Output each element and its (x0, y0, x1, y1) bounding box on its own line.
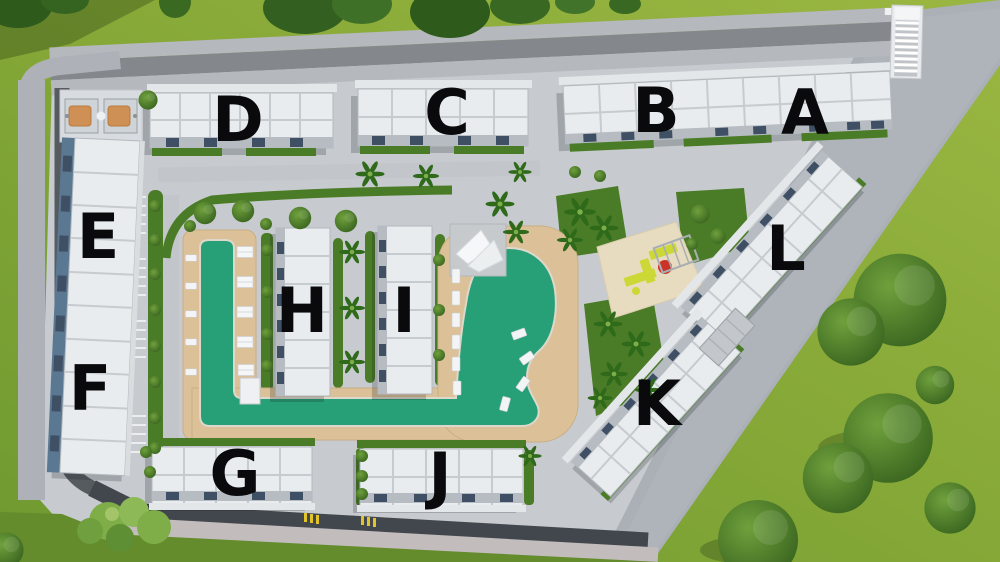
tree (924, 482, 975, 533)
bush (261, 360, 273, 372)
left-sidewalk (18, 80, 45, 500)
bush (356, 450, 368, 462)
bush (356, 488, 368, 500)
building-l-label: L (766, 212, 806, 285)
building-i-label: I (392, 274, 415, 347)
bush (144, 466, 156, 478)
building-k-label: K (633, 367, 683, 440)
bush (433, 349, 445, 361)
hoop (133, 114, 137, 118)
tree (232, 200, 254, 222)
bush (140, 446, 152, 458)
building-e-f[interactable] (47, 137, 145, 481)
hoop (65, 114, 69, 118)
bush (261, 328, 273, 340)
tree (803, 443, 873, 513)
bush (260, 218, 272, 230)
bush (710, 228, 726, 244)
bush (261, 244, 273, 256)
bush (77, 518, 103, 544)
tree (138, 90, 157, 109)
site-plan: A B C D E F G H I J K L (0, 0, 1000, 562)
bush (433, 254, 445, 266)
bush (137, 510, 171, 544)
hedge-strip (333, 238, 343, 388)
stair-landing (895, 7, 920, 20)
tree (335, 210, 357, 232)
building-c-label: C (424, 76, 470, 149)
building-b-label: B (632, 74, 679, 147)
stair-treads (894, 21, 918, 73)
bush (356, 470, 368, 482)
bush (569, 166, 581, 178)
bush (433, 304, 445, 316)
bush (184, 220, 196, 232)
building-f-label: F (69, 352, 111, 425)
bush (686, 238, 698, 250)
building-j-label: J (424, 439, 451, 512)
inner-road-horizontal[interactable] (158, 168, 540, 175)
bush (149, 304, 161, 316)
tree (194, 202, 216, 224)
site-plan-canvas: A B C D E F G H I J K L (0, 0, 1000, 562)
basketball-court[interactable] (60, 90, 142, 142)
bush (106, 524, 134, 552)
building-g-label: G (210, 437, 261, 510)
building-a-label: A (781, 76, 829, 149)
bush (149, 412, 161, 424)
bush (261, 286, 273, 298)
bush (149, 268, 161, 280)
bush (149, 376, 161, 388)
bush (149, 340, 161, 352)
center-circle (97, 112, 106, 121)
tree (289, 207, 311, 229)
tree (817, 298, 884, 365)
bush-highlight (105, 507, 119, 521)
bush (149, 200, 161, 212)
bush (149, 234, 161, 246)
building-d-label: D (212, 83, 263, 156)
building-h-label: H (276, 274, 328, 347)
tree (916, 366, 954, 404)
building-e-label: E (77, 200, 119, 273)
bush (594, 170, 606, 182)
bush (690, 204, 709, 223)
pool-house (240, 378, 260, 404)
